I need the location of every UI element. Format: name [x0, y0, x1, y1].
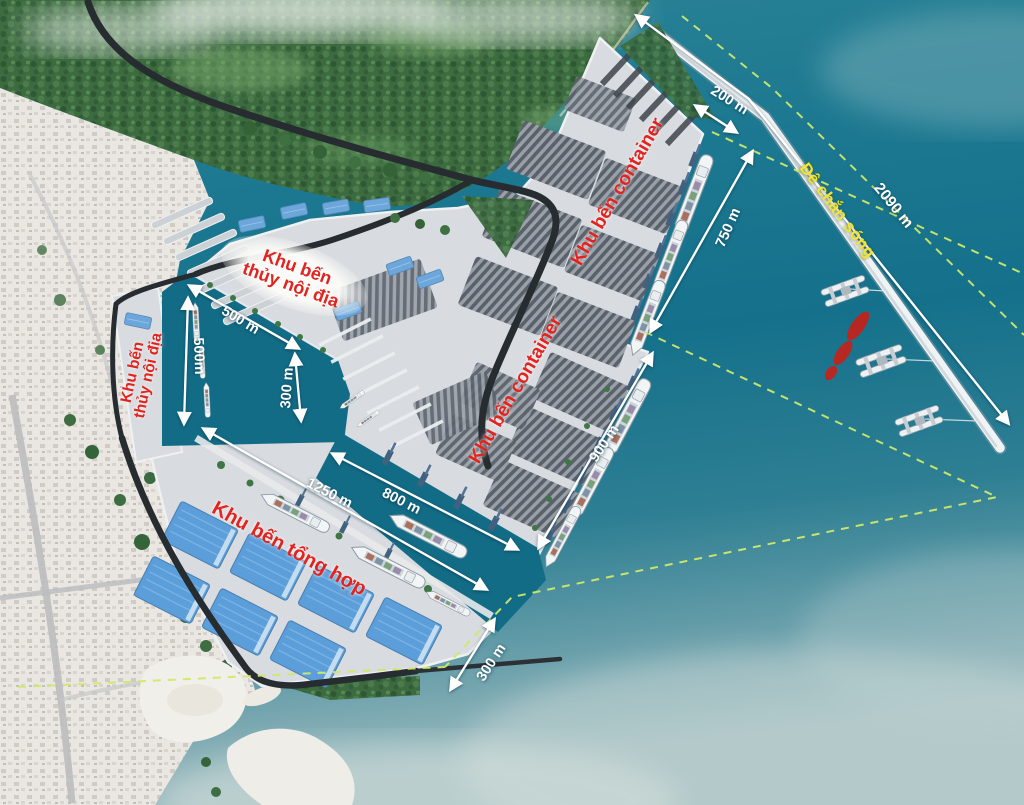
- dimension-500m-vertical: 500m: [190, 337, 206, 375]
- dimension-text: 300 m: [278, 367, 297, 409]
- dimension-300m-basin: 300 m: [279, 367, 297, 409]
- port-master-plan-map: Khu bến container Khu bến container Khu …: [0, 0, 1024, 805]
- dimension-text: 500m: [190, 337, 207, 375]
